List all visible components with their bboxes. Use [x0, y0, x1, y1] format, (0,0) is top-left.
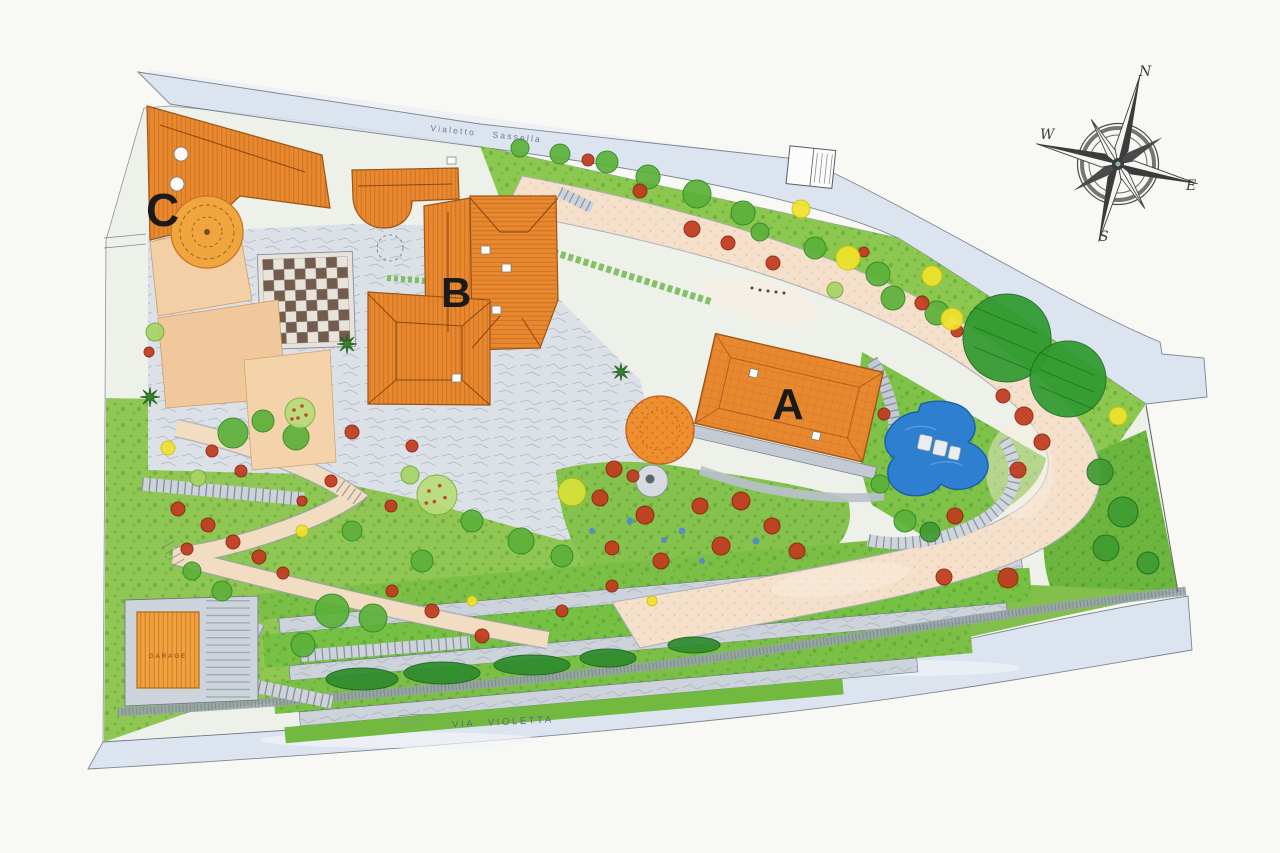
tree	[731, 201, 755, 225]
hedge	[326, 668, 398, 690]
checker-cell	[318, 321, 329, 332]
checker-cell	[337, 267, 348, 278]
checker-cell	[296, 322, 307, 333]
skylight	[492, 306, 501, 314]
checker-cell	[328, 320, 339, 331]
bush-red	[425, 604, 439, 618]
checker-cell	[274, 280, 285, 291]
bush-red	[144, 347, 154, 357]
tree-light	[190, 470, 206, 486]
checker-cell	[307, 332, 318, 343]
bush-red	[633, 184, 647, 198]
checker-cell	[284, 269, 295, 280]
bush-red	[277, 567, 289, 579]
bush-red	[385, 500, 397, 512]
tree	[804, 237, 826, 259]
checker-cell	[316, 268, 327, 279]
tree-yellow	[922, 266, 942, 286]
bush-red	[606, 580, 618, 592]
checker-cell	[306, 300, 317, 311]
checker-cell	[286, 322, 297, 333]
tree	[315, 594, 349, 628]
bush-red	[252, 550, 266, 564]
tree	[871, 475, 889, 493]
bush-red	[789, 543, 805, 559]
checker-cell	[285, 301, 296, 312]
tree-yellow	[296, 525, 308, 537]
checker-cell	[317, 310, 328, 321]
bush-red	[653, 553, 669, 569]
hedge	[580, 649, 636, 667]
checker-cell	[296, 300, 307, 311]
checker-cell	[284, 258, 295, 269]
checker-cell	[337, 257, 348, 268]
bush-red	[627, 470, 639, 482]
checker-cell	[305, 268, 316, 279]
checker-cell	[326, 257, 337, 268]
bush-red	[386, 585, 398, 597]
tree-light	[146, 323, 164, 341]
checker-cell	[262, 259, 273, 270]
checker-cell	[318, 331, 329, 342]
tree	[411, 550, 433, 572]
hedge	[668, 637, 720, 653]
skylight	[749, 368, 759, 378]
dot-blue	[627, 518, 634, 525]
checker-cell	[295, 279, 306, 290]
checker-cell	[306, 279, 317, 290]
tree	[550, 144, 570, 164]
bush-red	[936, 569, 952, 585]
dot-black	[751, 287, 754, 290]
bush-red	[325, 475, 337, 487]
skylight	[502, 264, 511, 272]
bush-red	[692, 498, 708, 514]
tree-yellow	[647, 596, 657, 606]
tree-yellow	[1109, 407, 1127, 425]
checker-cell	[286, 333, 297, 344]
bush-red	[732, 492, 750, 510]
compass-west-label: W	[1040, 127, 1056, 143]
checker-cell	[328, 299, 339, 310]
tree-yellow	[161, 441, 175, 455]
checker-cell	[263, 270, 274, 281]
bush-red	[764, 518, 780, 534]
tree	[291, 633, 315, 657]
tree	[252, 410, 274, 432]
bush-red	[766, 256, 780, 270]
checker-cell	[285, 290, 296, 301]
tree	[894, 510, 916, 532]
site-plan-page: GARAGE A B C Vialetto Sassella VIA VIOLE…	[0, 0, 1280, 853]
tree	[212, 581, 232, 601]
checker-cell	[273, 259, 284, 270]
building-a-label: A	[772, 380, 804, 429]
orange-tree-texture	[626, 396, 694, 464]
bush-red	[1015, 407, 1033, 425]
street-structure	[786, 146, 836, 189]
tree-yellow	[941, 308, 963, 330]
checker-cell	[337, 278, 348, 289]
tree	[881, 286, 905, 310]
tree-light	[827, 282, 843, 298]
bush-red	[605, 541, 619, 555]
tree-dark	[920, 522, 940, 542]
building-c-label: C	[146, 184, 179, 236]
checker-cell	[327, 278, 338, 289]
dot-black	[767, 290, 770, 293]
checker-cell	[296, 311, 307, 322]
tower-center	[204, 229, 210, 235]
building-b-label: B	[441, 269, 471, 316]
checker-cell	[286, 311, 297, 322]
tree	[183, 562, 201, 580]
checker-cell	[294, 258, 305, 269]
bush-red	[556, 605, 568, 617]
checker-cell	[329, 331, 340, 342]
bush-red	[592, 490, 608, 506]
site-plan-svg: GARAGE A B C Vialetto Sassella VIA VIOLE…	[0, 0, 1280, 853]
tree-dark	[1108, 497, 1138, 527]
tree-light	[401, 466, 419, 484]
tree-yellow	[792, 200, 810, 218]
stepping-stone	[948, 446, 961, 461]
dot-blue	[753, 538, 760, 545]
tree	[359, 604, 387, 632]
tree	[218, 418, 248, 448]
bush-yellow	[558, 478, 586, 506]
checker-cell	[339, 320, 350, 331]
skylight	[481, 246, 490, 254]
compass-north-label: N	[1138, 64, 1152, 80]
bush-red	[406, 440, 418, 452]
bush-red	[606, 461, 622, 477]
bush-red	[915, 296, 929, 310]
tree	[342, 521, 362, 541]
bush-red	[297, 496, 307, 506]
bush-red	[171, 502, 185, 516]
checker-cell	[273, 269, 284, 280]
checker-cell	[326, 267, 337, 278]
garage: GARAGE	[125, 596, 258, 706]
bush-red	[712, 537, 730, 555]
checker-cell	[338, 288, 349, 299]
palm	[612, 363, 630, 381]
checker-cell	[338, 299, 349, 310]
compass-east-label: E	[1185, 178, 1196, 194]
checker-cell	[327, 289, 338, 300]
bush-red	[181, 543, 193, 555]
checker-cell	[317, 289, 328, 300]
checker-cell	[264, 291, 275, 302]
bush-red	[201, 518, 215, 532]
street-structure-outline	[786, 146, 836, 189]
checker-cell	[295, 290, 306, 301]
bush-red	[721, 236, 735, 250]
checker-cell	[338, 310, 349, 321]
garage-label: GARAGE	[149, 653, 188, 660]
stepping-stone	[917, 434, 933, 451]
garage-hatch	[137, 612, 199, 688]
bush-red	[1034, 434, 1050, 450]
checker-cell	[305, 258, 316, 269]
dot-black	[759, 289, 762, 292]
checker-cell	[284, 280, 295, 291]
tree	[866, 262, 890, 286]
round-tower	[171, 196, 243, 268]
tree	[551, 545, 573, 567]
checker-cell	[315, 257, 326, 268]
tree	[461, 510, 483, 532]
tree-dark	[1087, 459, 1113, 485]
tree-yellow	[467, 596, 477, 606]
bush-red	[475, 629, 489, 643]
tree-yellow	[836, 246, 860, 270]
checker-cell	[274, 291, 285, 302]
hedge	[404, 662, 480, 684]
checker-cell	[317, 300, 328, 311]
dot-black	[775, 291, 778, 294]
bush-red	[636, 506, 654, 524]
tree-fruit	[417, 475, 457, 515]
bush-red	[996, 389, 1010, 403]
tree	[751, 223, 769, 241]
checker-cell	[263, 280, 274, 291]
dot-black	[783, 292, 786, 295]
bush-red	[859, 247, 869, 257]
checker-cell	[307, 321, 318, 332]
stepping-stone	[932, 439, 948, 456]
bush-red	[582, 154, 594, 166]
tree	[596, 151, 618, 173]
bush-red	[878, 408, 890, 420]
skylight	[447, 157, 456, 164]
bush-red	[235, 465, 247, 477]
checker-cell	[306, 289, 317, 300]
skylight	[174, 147, 188, 161]
checker-cell	[316, 278, 327, 289]
tree	[683, 180, 711, 208]
paved-circle-center	[646, 475, 655, 484]
skylight	[811, 431, 821, 441]
bush-red	[998, 568, 1018, 588]
checker-cell	[328, 310, 339, 321]
checker-cell	[297, 332, 308, 343]
checker-cell	[295, 269, 306, 280]
tree-dark	[1093, 535, 1119, 561]
bush-red	[226, 535, 240, 549]
bush-red	[345, 425, 359, 439]
tree-fruit	[285, 398, 315, 428]
dot-blue	[699, 558, 705, 564]
skylight	[452, 374, 461, 382]
hedge	[494, 655, 570, 675]
dot-blue	[661, 537, 667, 543]
compass-south-label: S	[1099, 229, 1109, 245]
bush-red	[947, 508, 963, 524]
tree-big	[1030, 341, 1106, 417]
tree-dark	[1137, 552, 1159, 574]
bush-red	[206, 445, 218, 457]
palm	[337, 334, 357, 354]
dot-blue	[679, 528, 686, 535]
dot-blue	[589, 528, 595, 534]
bush-red	[1010, 462, 1026, 478]
palm	[140, 387, 160, 407]
tree	[508, 528, 534, 554]
checker-cell	[307, 311, 318, 322]
bush-red	[684, 221, 700, 237]
